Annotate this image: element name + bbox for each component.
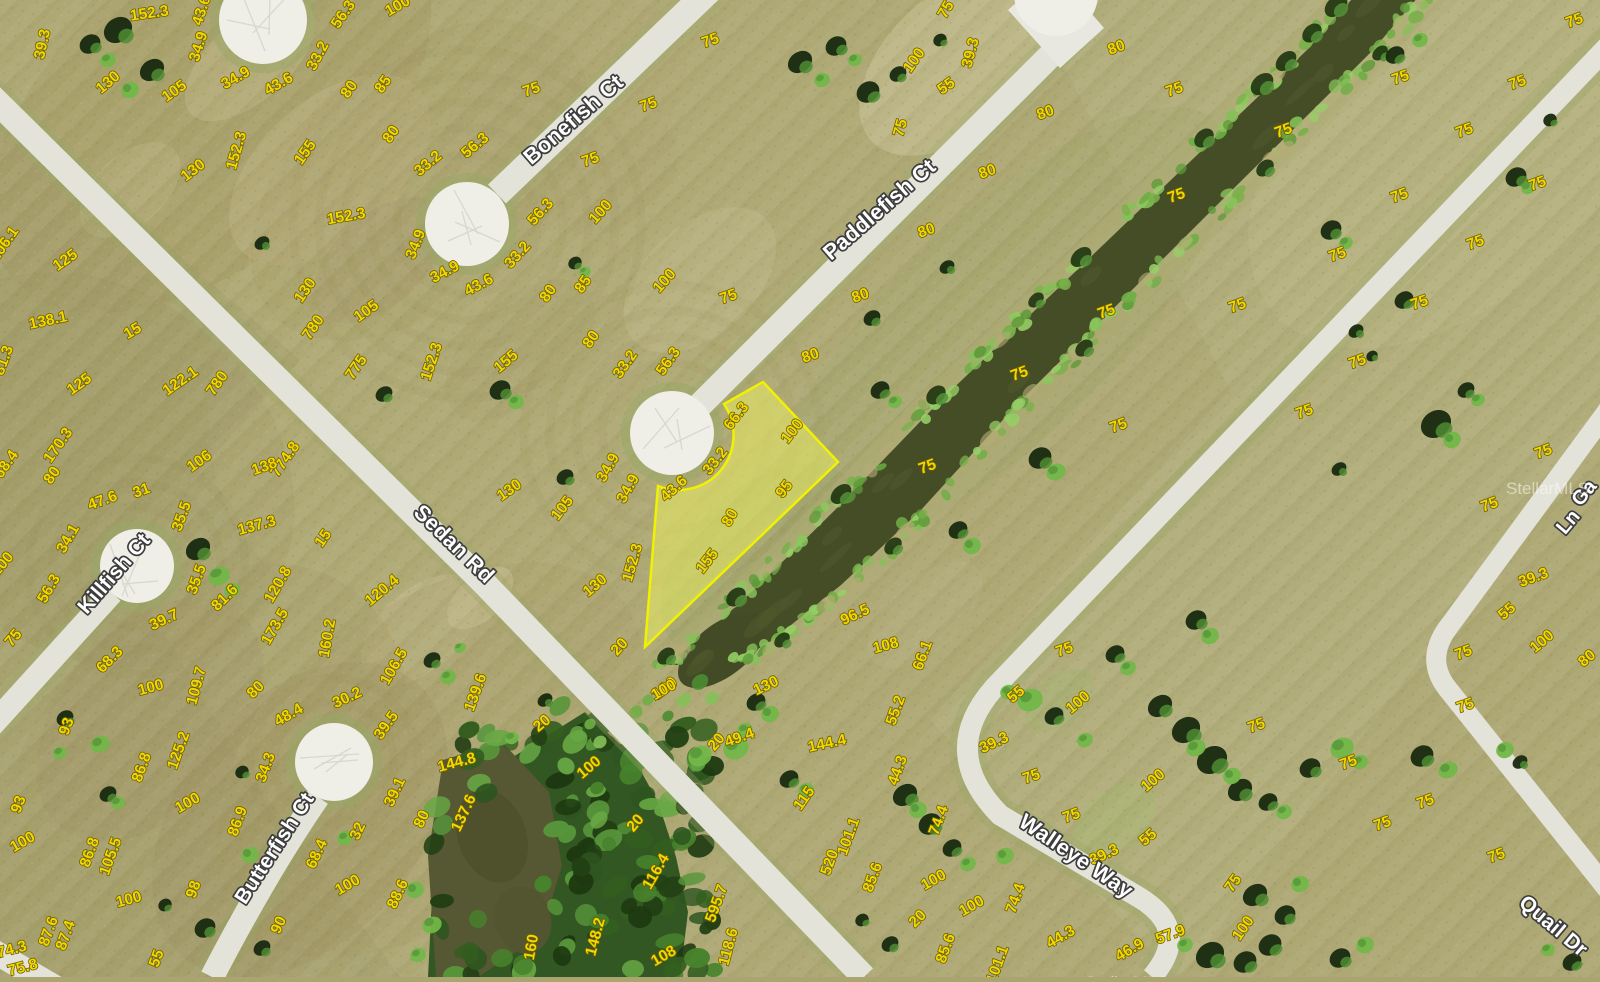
svg-text:StellarMLS: StellarMLS xyxy=(1085,973,1168,977)
svg-text:StellarMLS: StellarMLS xyxy=(1506,479,1589,498)
